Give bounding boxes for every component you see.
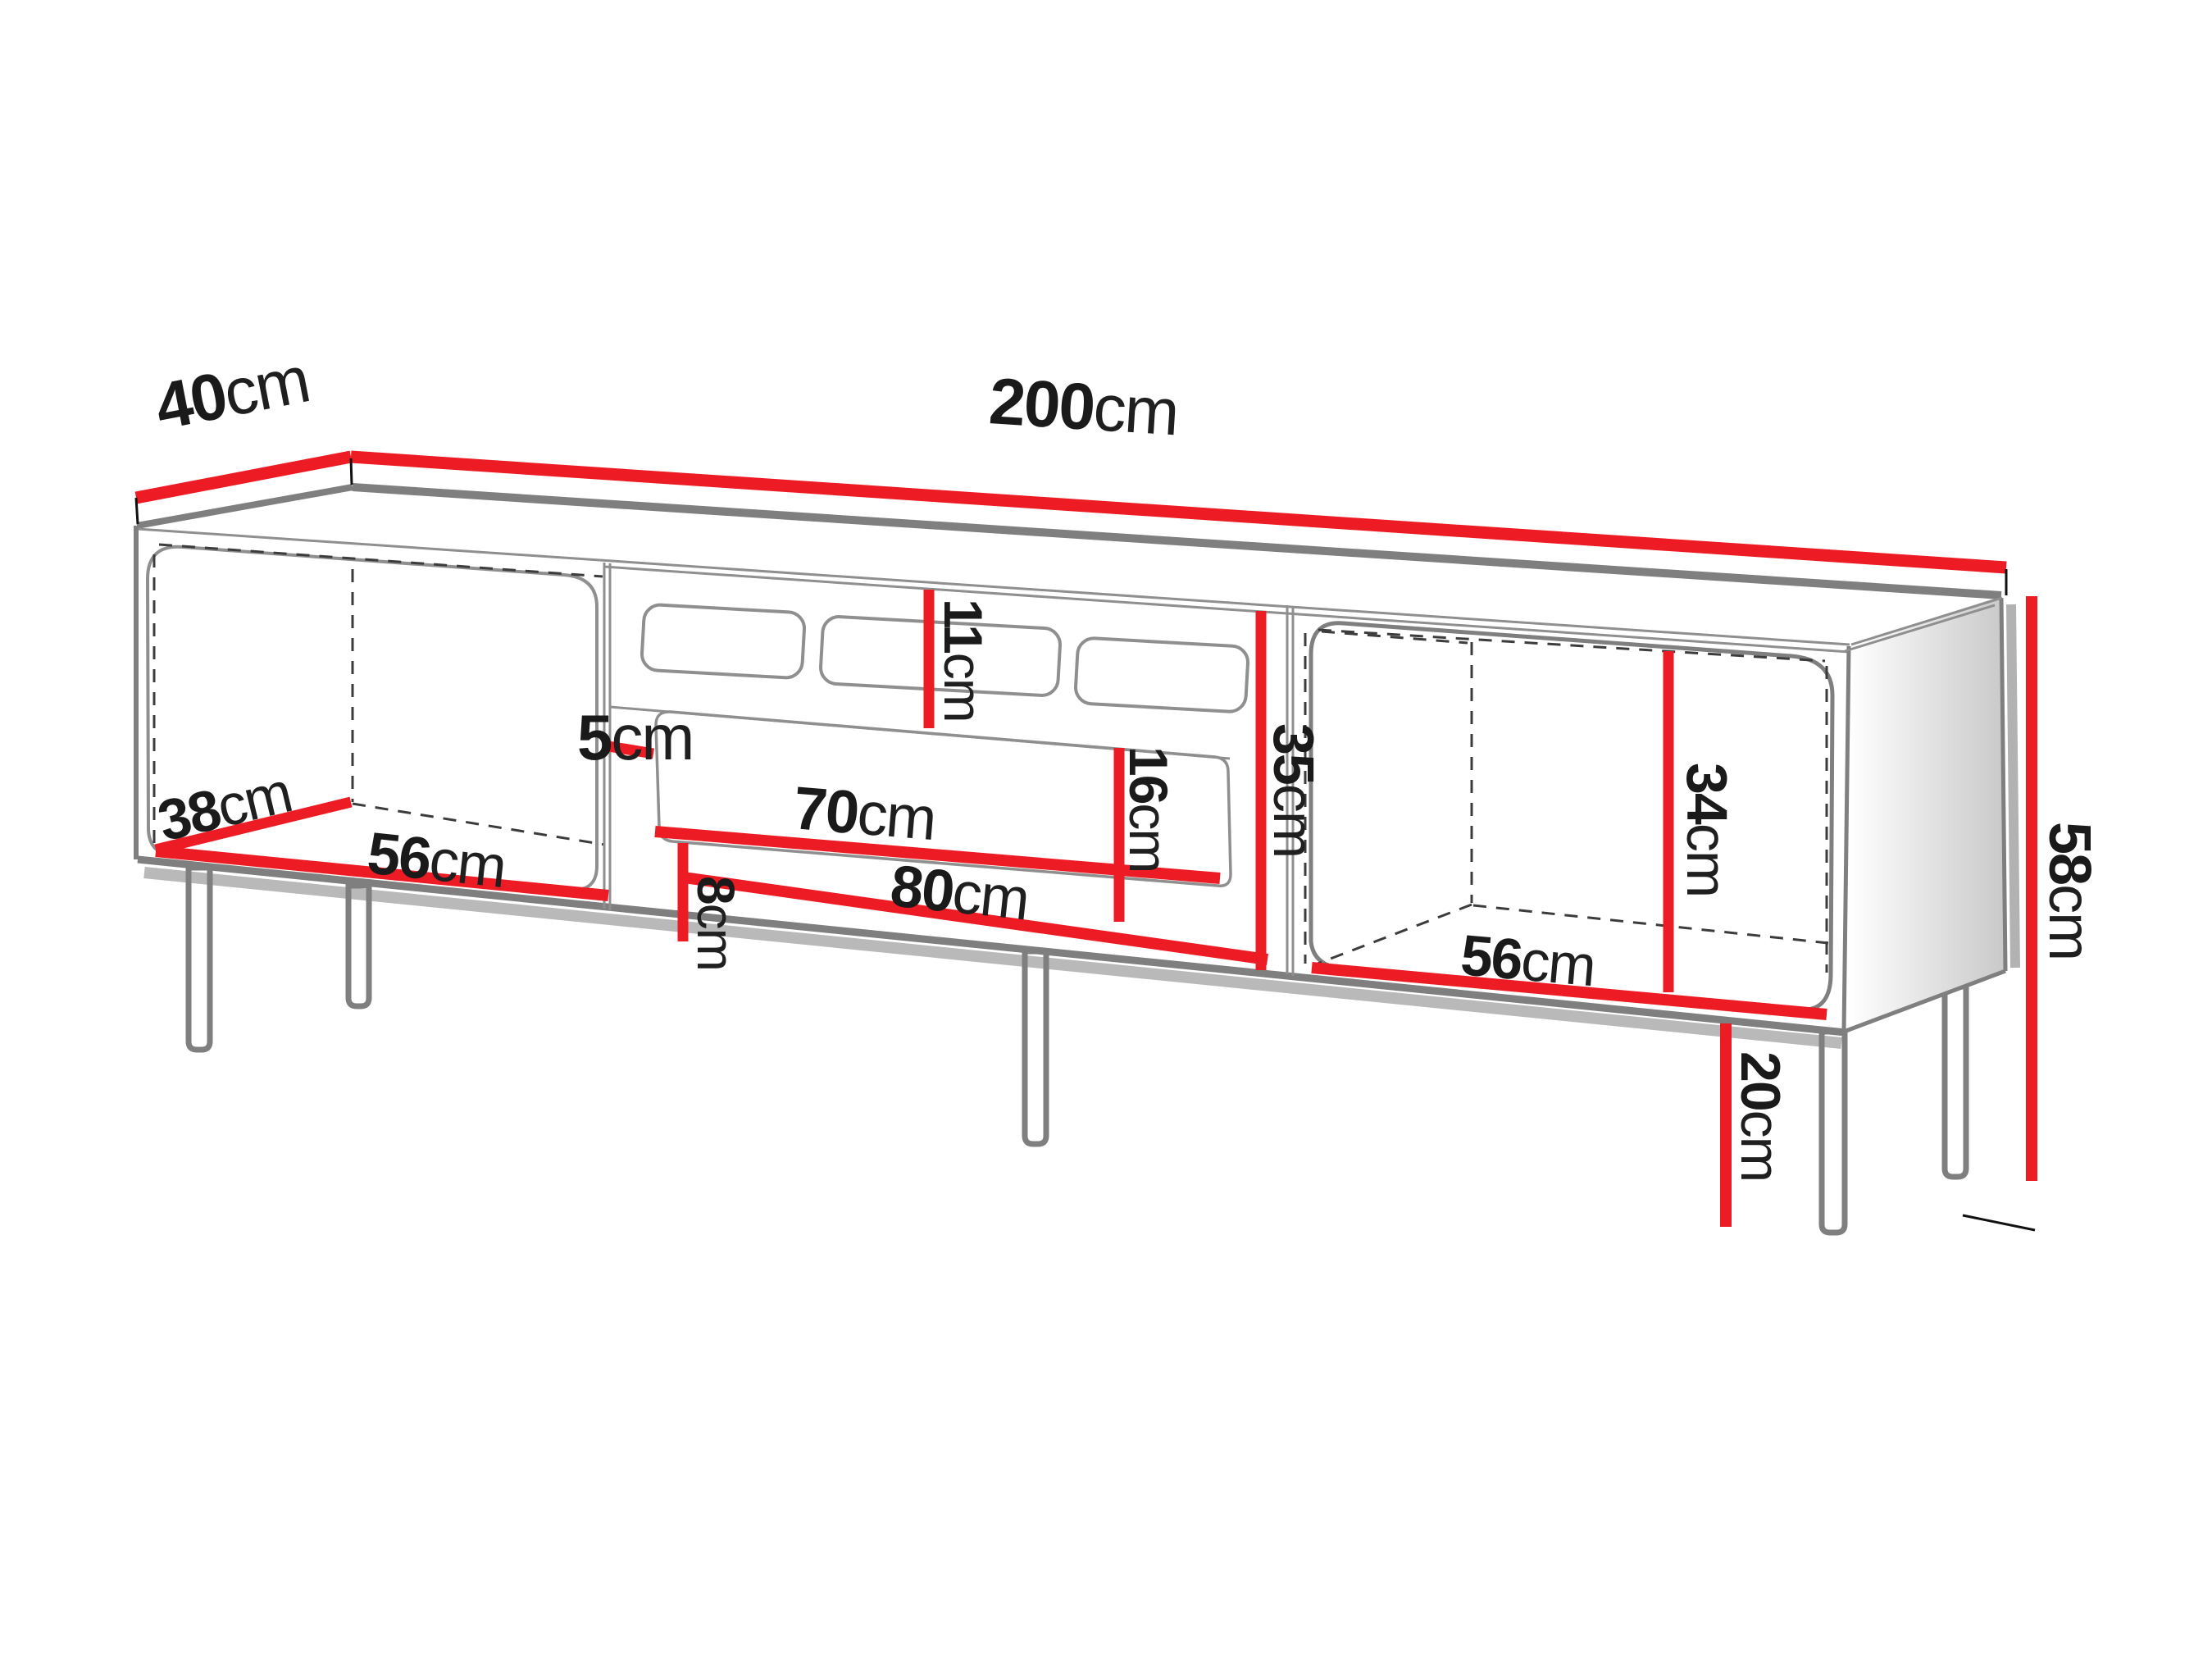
label-drawer-front-height: 16cm — [1118, 746, 1179, 872]
label-left-inner-width: 56cm — [364, 820, 508, 900]
label-left-inner-depth: 38cm — [152, 760, 297, 854]
dimension-tick-left — [136, 498, 138, 524]
vent-slot-1 — [641, 604, 805, 679]
front-right-leg — [1822, 1032, 1845, 1233]
label-total-width: 200cm — [987, 364, 1180, 449]
back-right-leg — [1945, 987, 1966, 1177]
diagram-page: 40cm 200cm 58cm 20cm 11cm 35cm 16cm 34cm… — [0, 0, 2212, 1659]
label-right-inner-width: 56cm — [1459, 923, 1597, 998]
right-shadow — [2011, 604, 2015, 968]
label-niche-width: 80cm — [887, 853, 1031, 932]
back-left-leg — [348, 886, 369, 1006]
center-leg — [1025, 951, 1046, 1144]
legs — [189, 868, 1966, 1233]
vent-slot-3 — [1075, 637, 1249, 712]
right-side-panel — [1844, 596, 2005, 1033]
furniture-dimension-diagram: 40cm 200cm 58cm 20cm 11cm 35cm 16cm 34cm… — [0, 0, 2212, 1659]
label-drawer-side-gap: 5cm — [577, 701, 693, 773]
label-right-inner-height: 34cm — [1675, 763, 1739, 896]
floor-reference-line — [1963, 1215, 2035, 1230]
edge-top-front-inner — [604, 567, 1850, 652]
label-total-height: 58cm — [2037, 822, 2102, 959]
label-leg-height: 20cm — [1729, 1051, 1791, 1181]
edge-top-back — [353, 487, 2001, 595]
label-bottom-gap: 8cm — [686, 876, 745, 970]
front-left-leg — [189, 868, 210, 1050]
dimension-tick-corner — [351, 458, 352, 485]
label-drawer-width: 70cm — [791, 773, 938, 853]
label-top-depth: 40cm — [149, 343, 314, 444]
dimension-line-total-width — [351, 457, 2006, 567]
label-middle-section-height: 35cm — [1262, 723, 1326, 857]
label-top-niche-height: 11cm — [933, 599, 994, 722]
right-interior-dashed-floor-left — [1313, 905, 1472, 965]
